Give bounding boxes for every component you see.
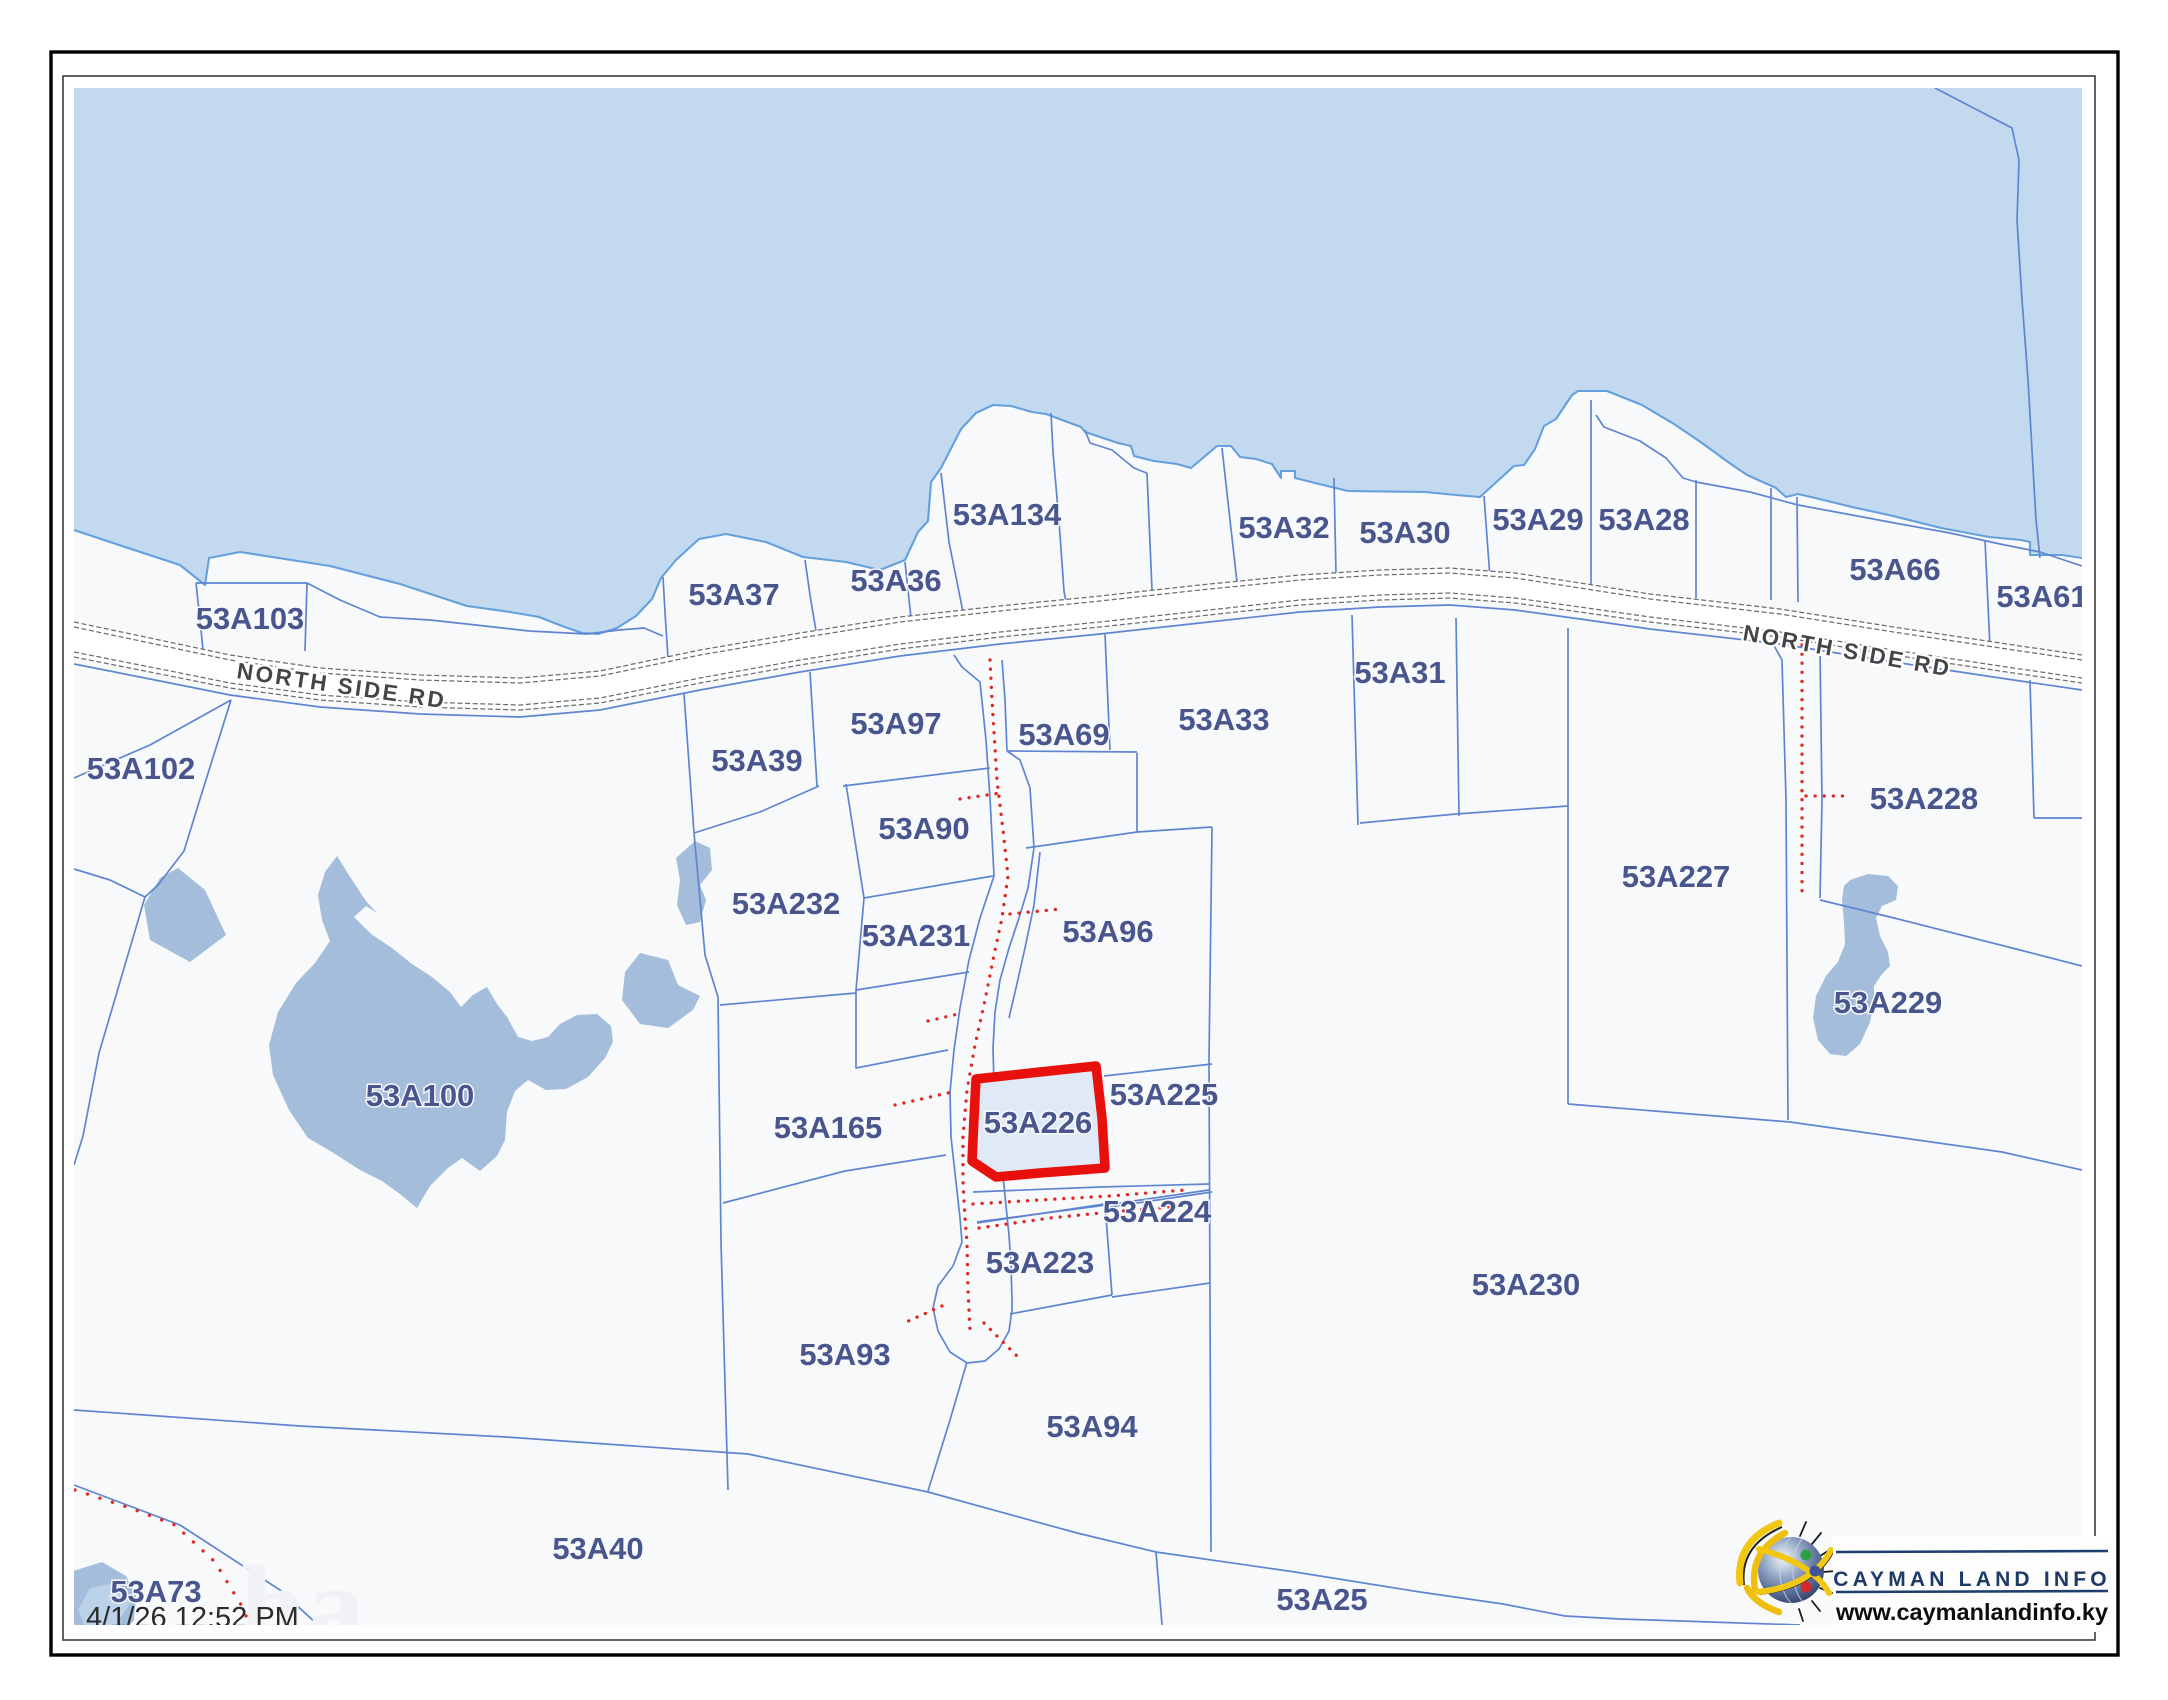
svg-text:53A231: 53A231 bbox=[862, 918, 971, 953]
svg-text:www.caymanlandinfo.ky: www.caymanlandinfo.ky bbox=[1835, 1599, 2108, 1625]
svg-text:53A29: 53A29 bbox=[1492, 502, 1583, 537]
svg-text:53A28: 53A28 bbox=[1598, 502, 1689, 537]
svg-text:53A223: 53A223 bbox=[986, 1245, 1095, 1280]
svg-text:CAYMAN LAND INFO: CAYMAN LAND INFO bbox=[1833, 1568, 2111, 1591]
svg-text:53A232: 53A232 bbox=[732, 886, 841, 921]
svg-text:53A100: 53A100 bbox=[366, 1078, 475, 1113]
svg-text:53A102: 53A102 bbox=[87, 751, 196, 786]
svg-text:53A94: 53A94 bbox=[1046, 1409, 1138, 1444]
svg-text:53A165: 53A165 bbox=[774, 1110, 883, 1145]
svg-text:53A90: 53A90 bbox=[878, 811, 969, 846]
svg-text:53A31: 53A31 bbox=[1354, 655, 1445, 690]
svg-text:53A25: 53A25 bbox=[1276, 1582, 1367, 1617]
svg-text:53A61: 53A61 bbox=[1996, 579, 2087, 614]
svg-text:53A69: 53A69 bbox=[1018, 717, 1109, 752]
svg-text:53A32: 53A32 bbox=[1238, 510, 1329, 545]
svg-text:53A96: 53A96 bbox=[1062, 914, 1153, 949]
svg-text:53A134: 53A134 bbox=[953, 497, 1062, 532]
svg-text:53A30: 53A30 bbox=[1359, 515, 1450, 550]
svg-text:53A93: 53A93 bbox=[799, 1337, 890, 1372]
svg-text:53A33: 53A33 bbox=[1178, 702, 1269, 737]
svg-text:53A226: 53A226 bbox=[984, 1105, 1093, 1140]
svg-text:53A225: 53A225 bbox=[1110, 1077, 1219, 1112]
svg-text:53A228: 53A228 bbox=[1870, 781, 1979, 816]
svg-text:53A66: 53A66 bbox=[1849, 552, 1940, 587]
svg-text:53A230: 53A230 bbox=[1472, 1267, 1581, 1302]
svg-text:53A229: 53A229 bbox=[1834, 985, 1943, 1020]
svg-text:53A227: 53A227 bbox=[1622, 859, 1731, 894]
svg-text:53A97: 53A97 bbox=[850, 706, 941, 741]
svg-text:53A224: 53A224 bbox=[1103, 1194, 1212, 1229]
svg-text:53A37: 53A37 bbox=[688, 577, 779, 612]
svg-text:53A39: 53A39 bbox=[711, 743, 802, 778]
svg-text:53A36: 53A36 bbox=[850, 563, 941, 598]
svg-text:53A103: 53A103 bbox=[196, 601, 305, 636]
svg-text:53A40: 53A40 bbox=[552, 1531, 643, 1566]
